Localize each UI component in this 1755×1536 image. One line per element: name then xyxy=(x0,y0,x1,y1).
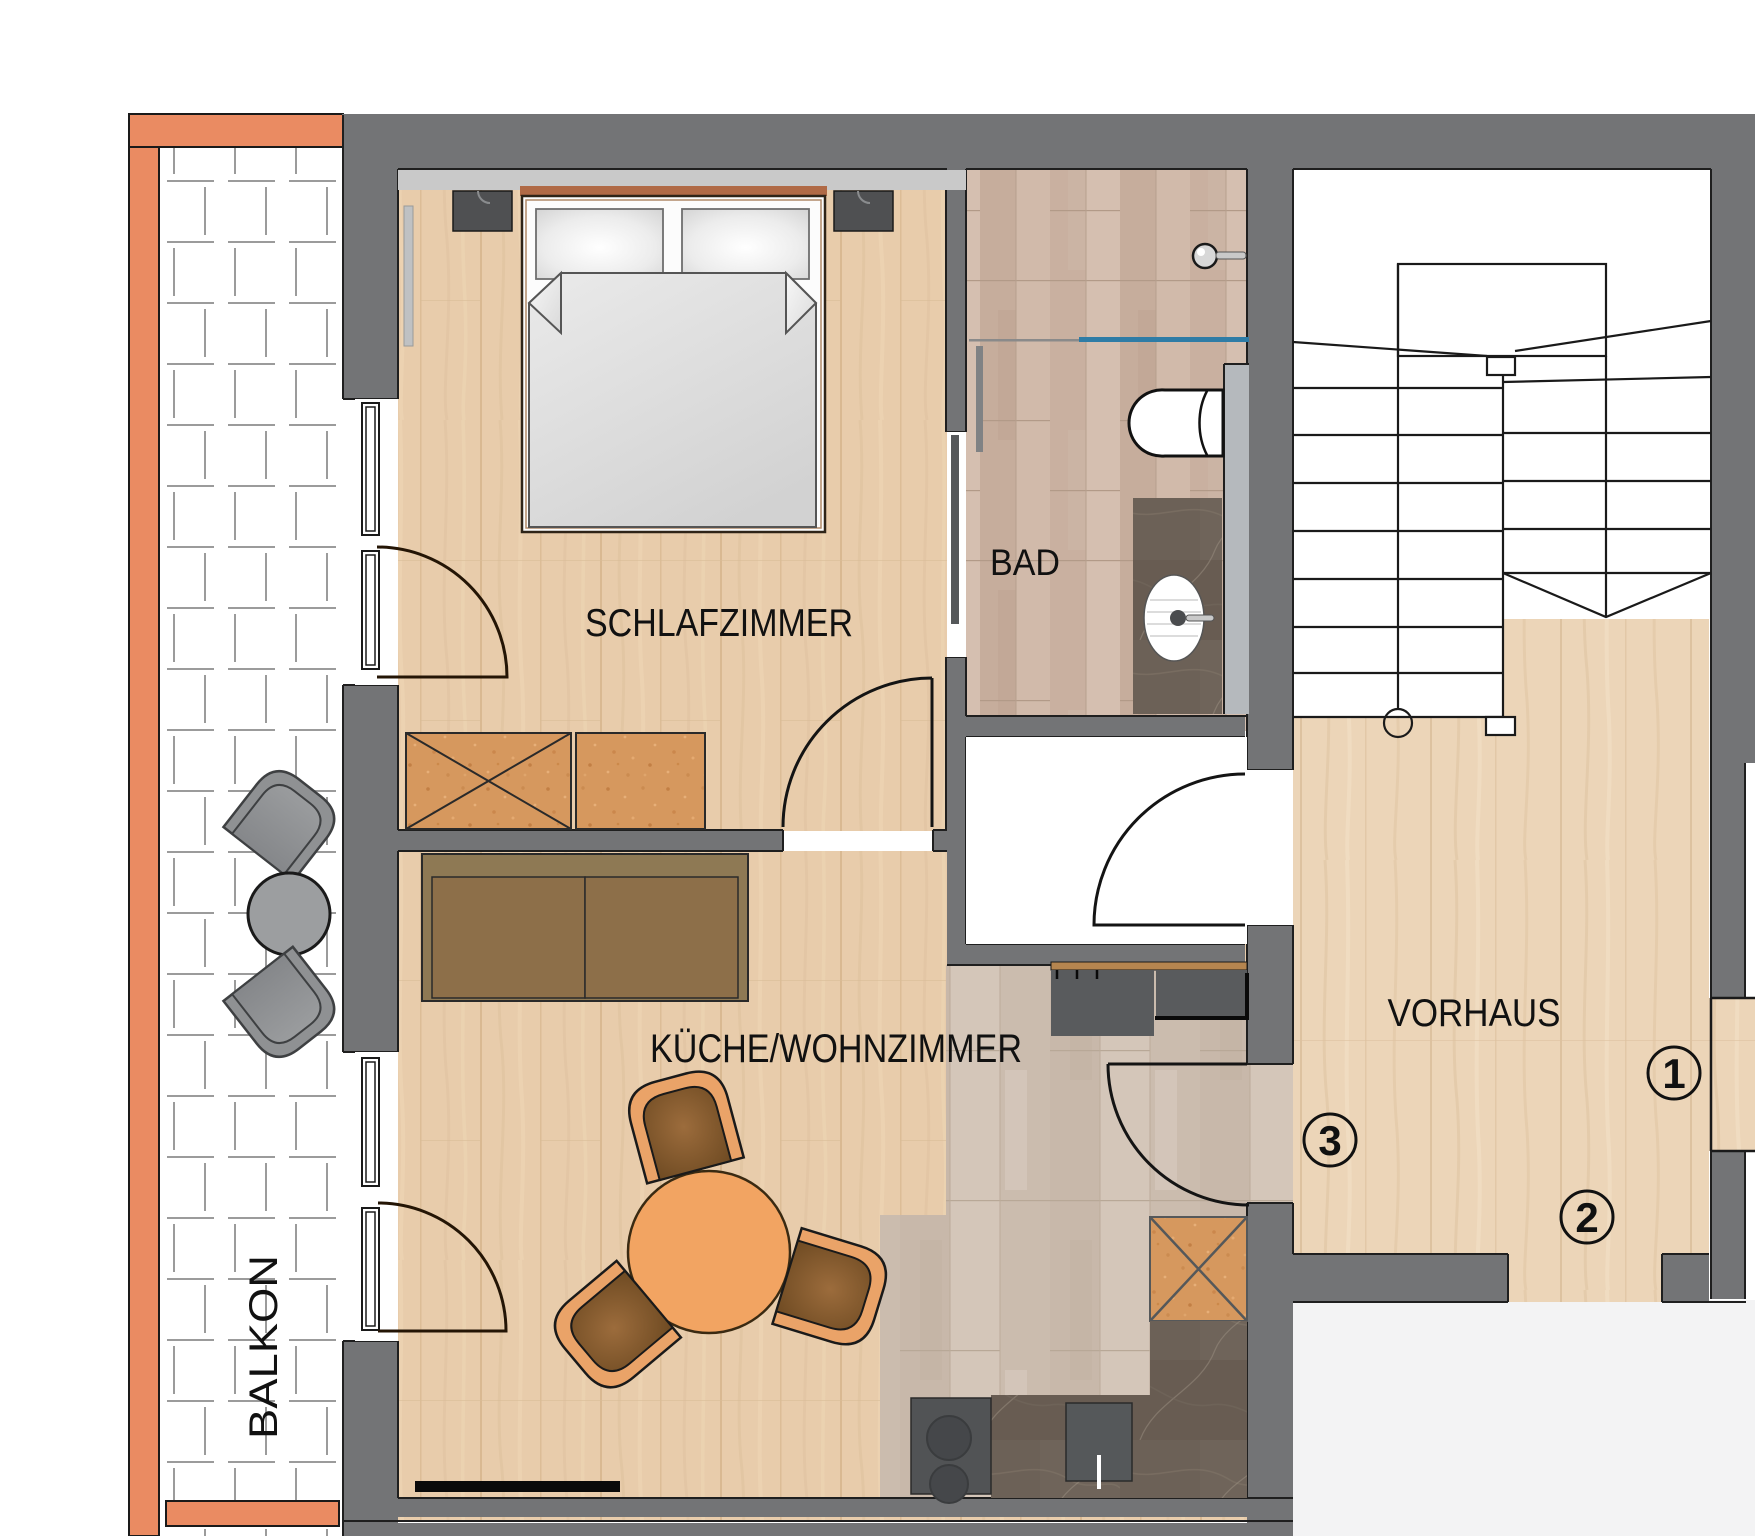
svg-text:BAD: BAD xyxy=(990,542,1060,583)
svg-text:VORHAUS: VORHAUS xyxy=(1388,992,1561,1035)
svg-text:3: 3 xyxy=(1318,1117,1341,1164)
svg-text:BALKON: BALKON xyxy=(242,1255,286,1439)
svg-text:1: 1 xyxy=(1662,1050,1685,1097)
svg-text:2: 2 xyxy=(1575,1194,1598,1241)
svg-text:KÜCHE/WOHNZIMMER: KÜCHE/WOHNZIMMER xyxy=(650,1027,1022,1071)
svg-text:SCHLAFZIMMER: SCHLAFZIMMER xyxy=(585,602,853,645)
